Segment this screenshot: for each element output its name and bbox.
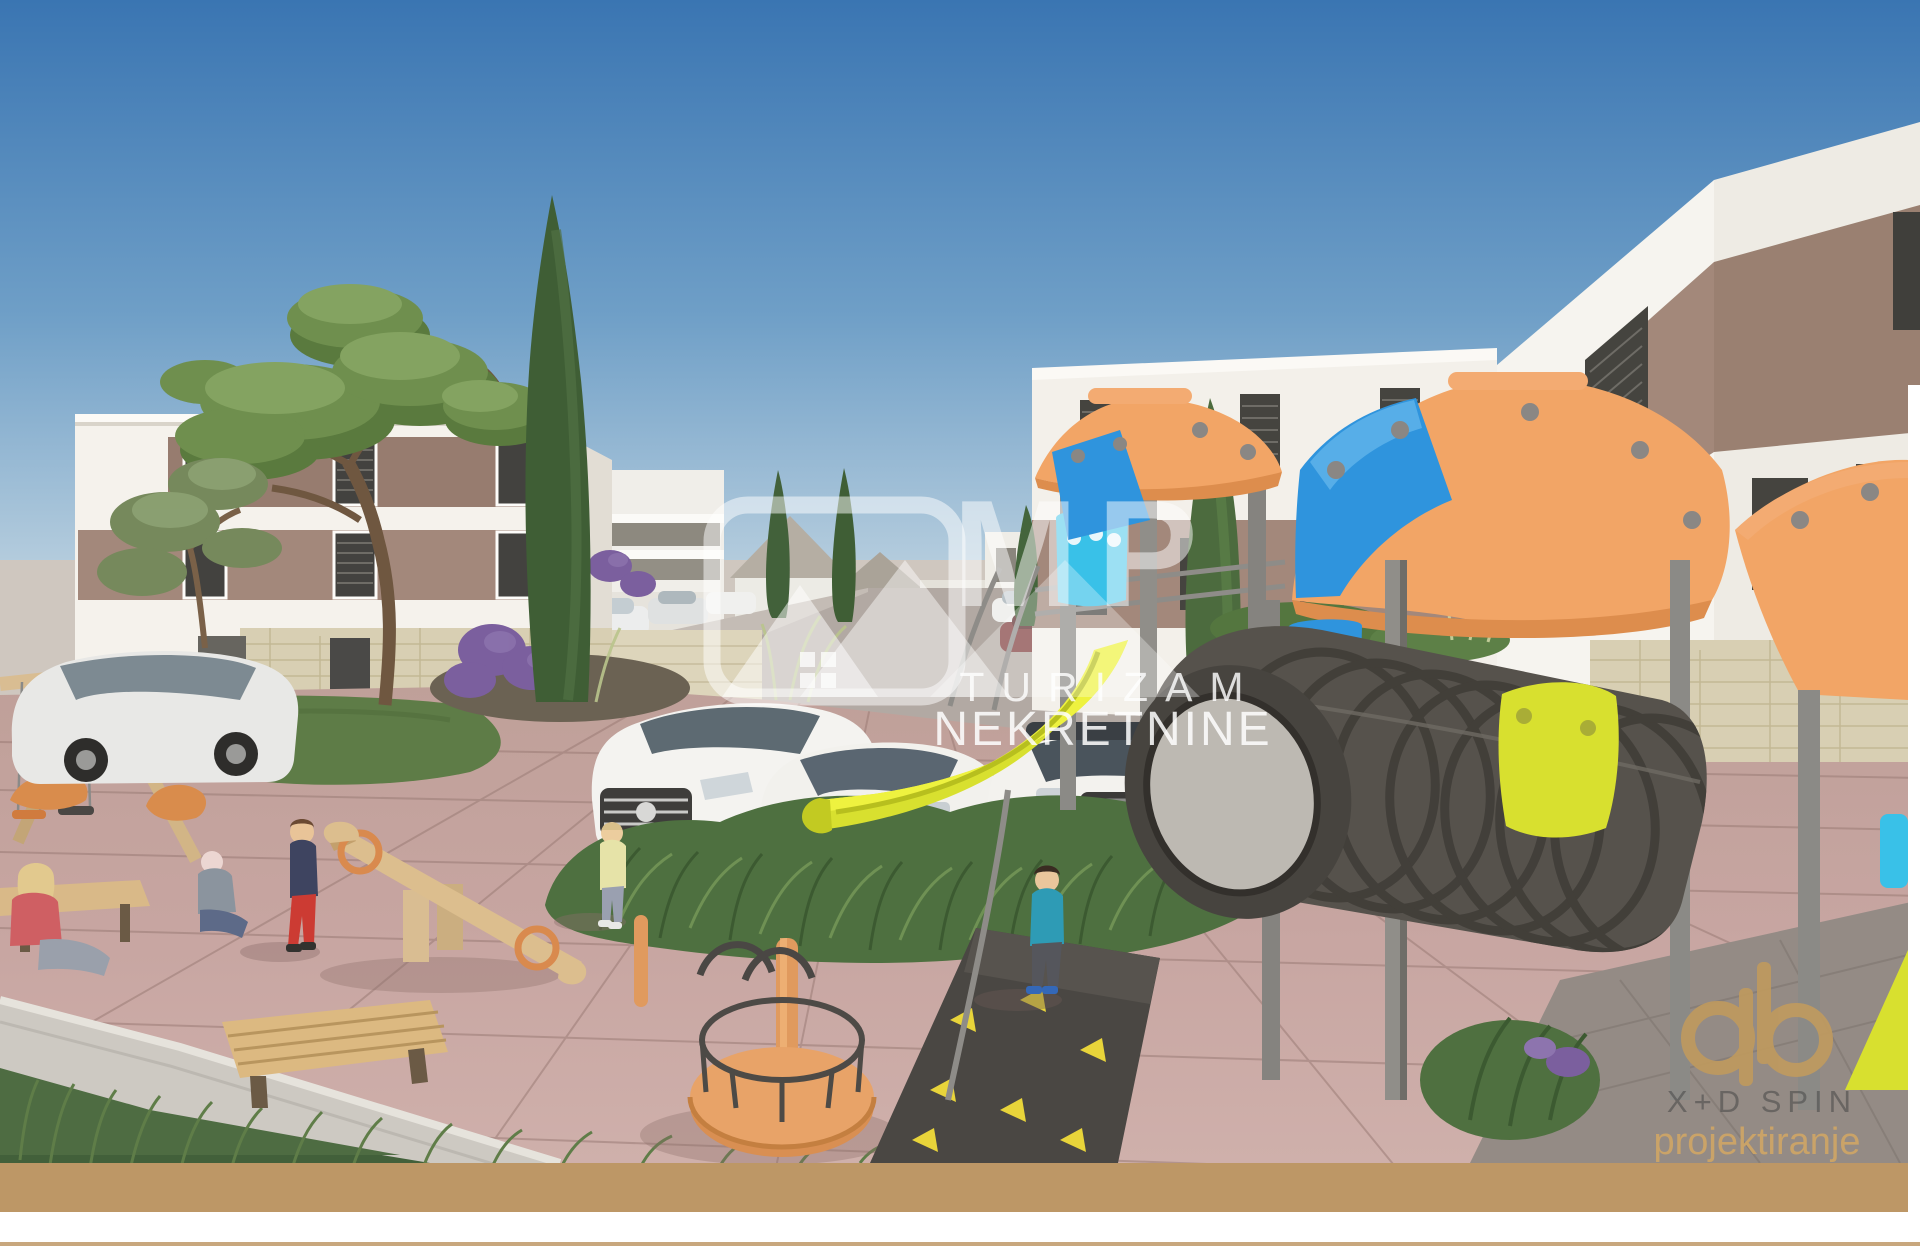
credit-line2: projektiranje: [1654, 1121, 1861, 1163]
yellow-panel-right: [1499, 682, 1619, 837]
footer-white-strip: [0, 1212, 1920, 1246]
architectural-rendering: MP TURIZAM NEKRETNINE X+D SPIN projektir…: [0, 0, 1920, 1246]
car-suv-far-left: [12, 651, 298, 784]
watermark-word2: NEKRETNINE: [933, 703, 1272, 756]
credit-line1: X+D SPIN: [1667, 1084, 1857, 1119]
footer-tan-line: [0, 1242, 1920, 1246]
watermark-monogram: MP: [952, 469, 1216, 639]
orange-bollard: [634, 915, 648, 1007]
footer-gold-bar: [0, 1163, 1908, 1212]
right-margin: [1908, 385, 1920, 1246]
